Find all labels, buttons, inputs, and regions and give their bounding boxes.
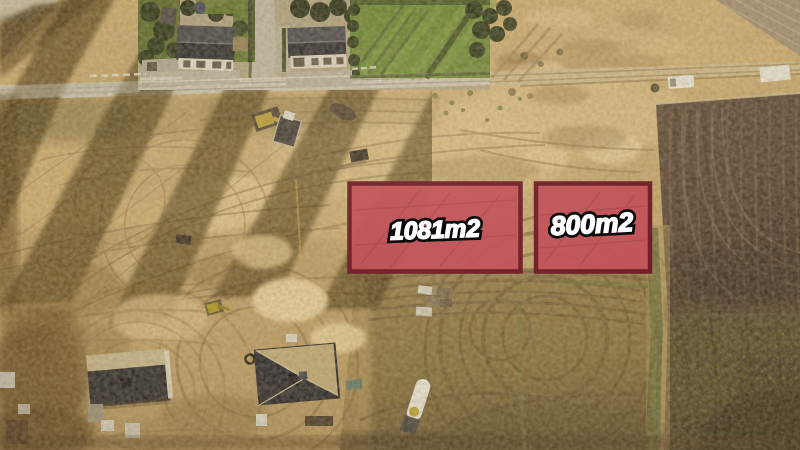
svg-text:800m2: 800m2	[550, 207, 634, 241]
svg-text:1081m2: 1081m2	[390, 215, 481, 245]
